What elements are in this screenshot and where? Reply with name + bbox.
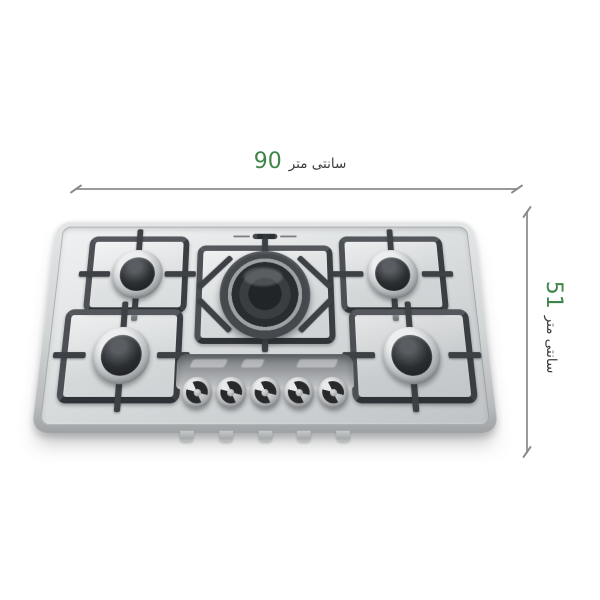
burner-top-right [338, 236, 449, 313]
front-edge-reflections [180, 431, 351, 442]
cooktop-rim [31, 220, 498, 432]
control-panel [181, 354, 350, 417]
burner-center [194, 245, 336, 343]
knob-row [181, 377, 349, 408]
width-dimension-label: 90 سانتی متر [215, 149, 385, 174]
control-knob-4 [284, 377, 315, 408]
cooktop-surface [40, 227, 491, 426]
dimension-tick-icon [511, 184, 524, 194]
dimension-tick-icon [522, 206, 532, 219]
product-dimension-diagram: 90 سانتی متر 51 سانتی متر [0, 0, 600, 600]
control-knob-3 [250, 377, 280, 408]
width-dimension-line [75, 188, 518, 190]
width-unit: سانتی متر [289, 156, 347, 172]
height-unit: سانتی متر [543, 316, 559, 374]
dimension-tick-icon [70, 184, 83, 194]
control-knob-1 [181, 377, 212, 408]
width-value: 90 [254, 149, 282, 174]
burner-bottom-left [56, 309, 184, 403]
burner-bottom-right [348, 309, 478, 403]
height-dimension-line [526, 211, 528, 453]
height-value: 51 [541, 281, 566, 309]
control-knob-5 [318, 377, 349, 408]
height-dimension-label: 51 سانتی متر [540, 263, 566, 391]
control-knob-2 [215, 377, 246, 408]
burner-top-left [83, 236, 190, 313]
dimension-tick-icon [522, 446, 532, 459]
cooktop-image [31, 220, 498, 432]
